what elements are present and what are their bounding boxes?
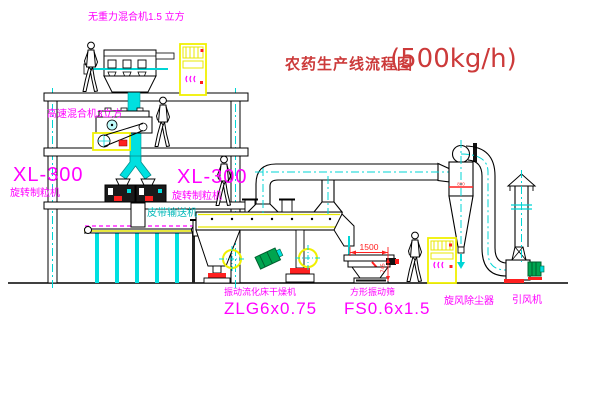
walking-person-4	[407, 232, 422, 281]
granulator-discharge-duct	[131, 203, 145, 227]
label-fan: 引风机	[512, 296, 542, 306]
y-splitter-chute	[116, 156, 155, 185]
label-belt-conveyor: 皮带输送机	[147, 209, 197, 219]
dryer-motor	[255, 246, 284, 269]
square-vibrating-sieve	[344, 255, 399, 283]
label-granulator-right-name: 旋转制粒机	[172, 192, 222, 202]
label-granulator-left-model: XL-300	[13, 165, 84, 185]
fan-motor	[528, 262, 544, 276]
belt-conveyor	[84, 226, 199, 283]
label-high-speed-mixer: 高速混合机3立方	[47, 110, 123, 120]
label-dryer-model: ZLG6x0.75	[224, 300, 317, 317]
label-dryer-name: 振动流化床干燥机	[224, 288, 296, 297]
control-cabinet-2	[428, 238, 456, 283]
label-granulator-left-name: 旋转制粒机	[10, 189, 60, 199]
walking-person-2	[155, 97, 170, 146]
label-gravity-mixer: 无重力混合机1.5 立方	[88, 13, 185, 23]
page-title-capacity: (500kg/h)	[390, 46, 517, 72]
process-flow-diagram: 1500 745 800	[0, 0, 600, 403]
label-cyclone: 旋风除尘器	[444, 297, 494, 307]
induced-draft-fan	[504, 247, 544, 283]
rotary-granulator-right	[136, 185, 166, 202]
exhaust-duct	[248, 164, 452, 215]
dim-sieve-height: 745	[381, 263, 387, 272]
dim-sieve-length: 1500	[360, 242, 379, 252]
control-cabinet-1	[180, 44, 206, 95]
label-sieve-name: 方形振动筛	[350, 288, 395, 297]
label-sieve-model: FS0.6x1.5	[344, 300, 431, 317]
label-granulator-right-model: XL-300	[177, 167, 248, 187]
rotary-granulator-left	[105, 185, 135, 202]
